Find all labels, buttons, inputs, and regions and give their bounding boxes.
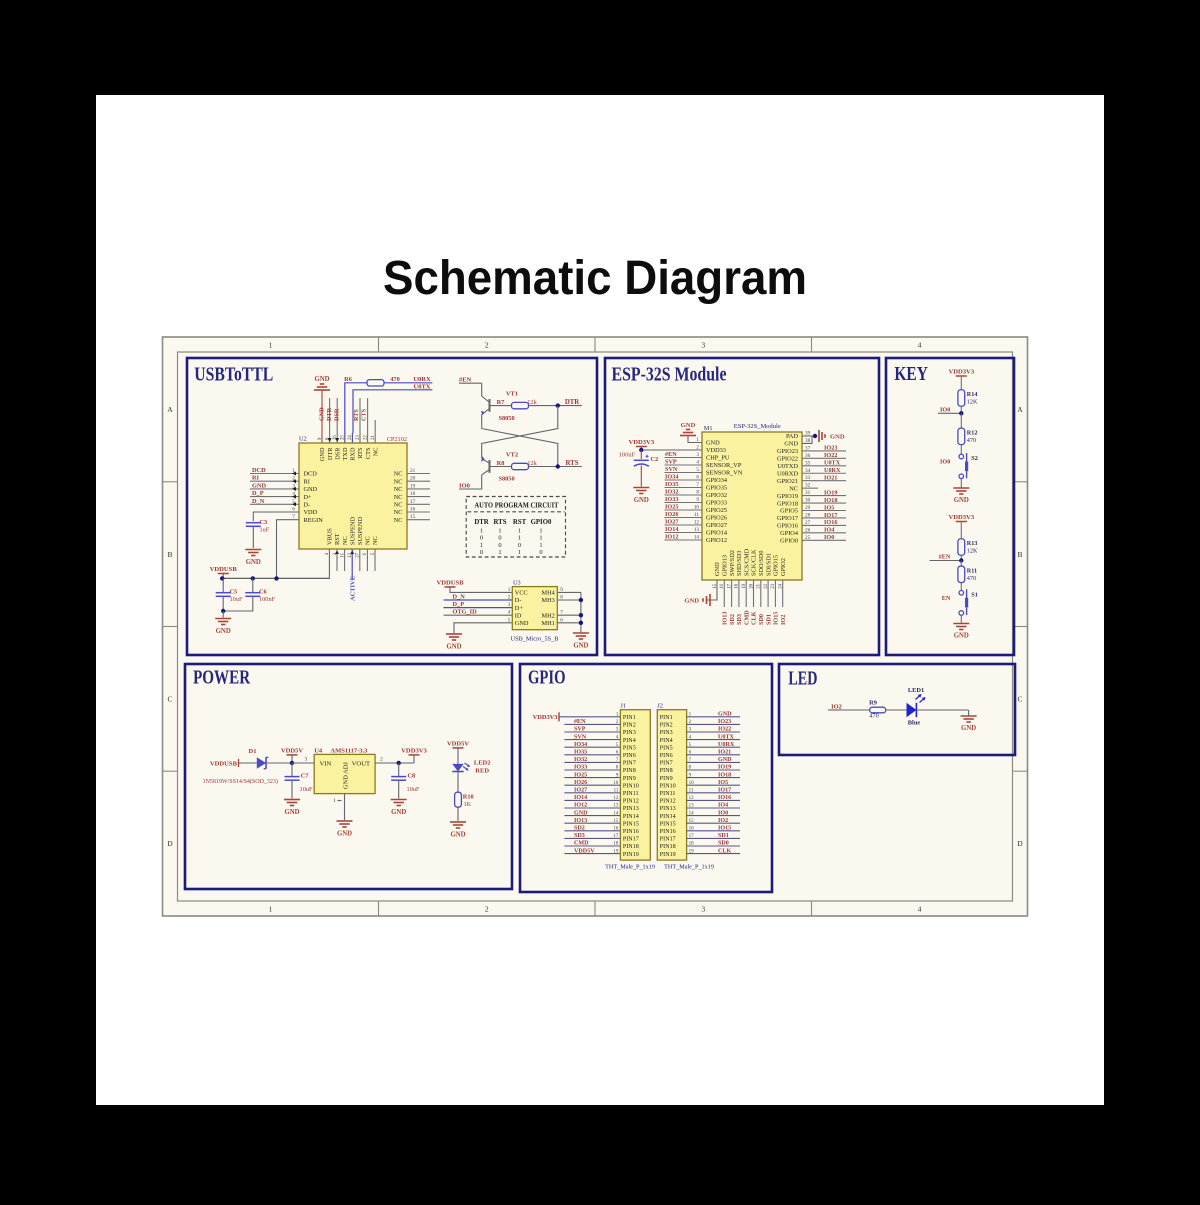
svg-text:SD2: SD2 — [574, 826, 585, 832]
svg-text:PIN14: PIN14 — [623, 814, 639, 820]
svg-text:VDD3V3: VDD3V3 — [948, 369, 974, 376]
svg-text:IO33: IO33 — [665, 496, 678, 503]
svg-text:IO18: IO18 — [824, 497, 837, 504]
svg-text:USB_Micro_5S_B: USB_Micro_5S_B — [511, 636, 559, 643]
svg-text:#EN: #EN — [574, 719, 586, 725]
svg-text:VDD3V3: VDD3V3 — [533, 714, 558, 721]
svg-text:SD0: SD0 — [758, 614, 765, 625]
svg-text:1: 1 — [518, 535, 521, 542]
svg-text:SD0: SD0 — [718, 841, 729, 847]
svg-text:GND: GND — [252, 482, 266, 489]
svg-text:Schematic Diagram: Schematic Diagram — [383, 252, 807, 305]
svg-text:IO16: IO16 — [718, 795, 731, 801]
svg-text:PIN8: PIN8 — [623, 768, 636, 774]
svg-text:S2: S2 — [971, 455, 978, 462]
svg-text:15: 15 — [410, 514, 416, 520]
svg-text:LED: LED — [788, 669, 817, 690]
svg-text:PIN15: PIN15 — [623, 821, 639, 827]
svg-text:23: 23 — [771, 583, 776, 588]
svg-text:GPIO16: GPIO16 — [777, 523, 798, 530]
svg-text:11: 11 — [614, 789, 619, 794]
svg-text:GPIO12: GPIO12 — [706, 537, 727, 544]
svg-text:D_N: D_N — [453, 594, 466, 601]
svg-text:IO34: IO34 — [665, 474, 678, 481]
svg-text:12: 12 — [613, 796, 619, 801]
svg-text:12K: 12K — [967, 399, 978, 406]
svg-text:SD3: SD3 — [574, 833, 585, 839]
svg-text:3: 3 — [508, 602, 511, 608]
svg-text:GND: GND — [246, 559, 261, 566]
svg-text:IO16: IO16 — [824, 519, 837, 526]
svg-text:0: 0 — [518, 542, 521, 549]
svg-text:1: 1 — [518, 549, 521, 556]
svg-text:IO0: IO0 — [718, 810, 728, 816]
svg-text:M1: M1 — [704, 425, 713, 432]
svg-text:13: 13 — [613, 804, 619, 809]
svg-text:GND: GND — [718, 712, 732, 718]
svg-text:S8050: S8050 — [499, 415, 515, 422]
svg-text:1: 1 — [518, 528, 521, 535]
svg-text:GPIO26: GPIO26 — [706, 515, 727, 522]
svg-text:RST: RST — [334, 533, 341, 545]
svg-text:20: 20 — [749, 583, 754, 588]
svg-text:GPIO22: GPIO22 — [777, 456, 798, 463]
svg-text:VT1: VT1 — [506, 391, 518, 398]
svg-text:SD1: SD1 — [718, 833, 729, 839]
svg-text:IO0: IO0 — [824, 534, 834, 541]
svg-text:C6: C6 — [259, 589, 267, 596]
svg-text:PIN11: PIN11 — [623, 791, 639, 797]
svg-text:GPIO21: GPIO21 — [777, 478, 798, 485]
svg-text:IO17: IO17 — [824, 512, 837, 519]
svg-text:18: 18 — [410, 491, 416, 497]
svg-text:D: D — [167, 839, 173, 848]
svg-text:NC: NC — [394, 494, 403, 501]
svg-text:NC: NC — [372, 448, 379, 457]
svg-text:GND: GND — [954, 497, 969, 504]
svg-text:NC: NC — [394, 502, 403, 509]
svg-text:U0RXD: U0RXD — [777, 470, 798, 477]
svg-text:GND: GND — [515, 620, 529, 627]
svg-text:23: 23 — [356, 435, 361, 440]
svg-text:DTR: DTR — [565, 399, 579, 406]
svg-text:GPIO32: GPIO32 — [706, 492, 727, 499]
svg-text:SDO/SD0: SDO/SD0 — [758, 550, 765, 576]
svg-text:2: 2 — [485, 905, 489, 914]
svg-text:17: 17 — [410, 499, 416, 505]
svg-text:1K: 1K — [464, 801, 472, 808]
svg-text:22: 22 — [363, 435, 368, 440]
svg-text:C3: C3 — [260, 519, 268, 526]
svg-text:U0TX: U0TX — [414, 383, 431, 390]
svg-text:25: 25 — [341, 435, 346, 440]
svg-text:VDD5V: VDD5V — [574, 848, 595, 854]
svg-text:GPIO17: GPIO17 — [777, 515, 798, 522]
svg-text:C: C — [1017, 694, 1022, 703]
svg-text:20: 20 — [410, 476, 416, 482]
svg-text:SENSOR_VP: SENSOR_VP — [706, 462, 742, 469]
svg-text:PIN1: PIN1 — [623, 715, 636, 721]
svg-text:GND: GND — [706, 440, 720, 447]
svg-text:IO13: IO13 — [722, 612, 729, 625]
svg-text:0: 0 — [539, 549, 542, 556]
svg-text:D-: D- — [304, 502, 311, 509]
svg-text:#EN: #EN — [665, 451, 677, 458]
svg-text:PAD: PAD — [786, 433, 798, 440]
svg-text:1N5819W/SS14/S4(SOD_323): 1N5819W/SS14/S4(SOD_323) — [203, 778, 278, 785]
svg-text:DTR: DTR — [327, 447, 334, 460]
svg-text:RI: RI — [304, 478, 310, 485]
svg-text:GND: GND — [450, 832, 465, 839]
svg-text:IO19: IO19 — [718, 765, 731, 771]
svg-text:R12: R12 — [967, 429, 978, 436]
svg-text:RTS: RTS — [566, 460, 579, 467]
svg-text:RTS: RTS — [353, 409, 360, 421]
svg-text:16: 16 — [720, 583, 725, 588]
svg-text:21: 21 — [371, 435, 376, 440]
svg-text:GPIO25: GPIO25 — [706, 507, 727, 514]
svg-text:19: 19 — [410, 483, 416, 489]
svg-text:12k: 12k — [527, 399, 537, 406]
svg-text:OTG_ID: OTG_ID — [453, 609, 478, 616]
svg-text:PIN15: PIN15 — [660, 821, 676, 827]
svg-text:IO15: IO15 — [718, 826, 731, 832]
svg-text:0: 0 — [480, 549, 483, 556]
svg-text:D-: D- — [515, 597, 522, 604]
svg-text:GND ADJ: GND ADJ — [343, 762, 350, 789]
svg-text:PIN9: PIN9 — [623, 776, 636, 782]
svg-text:PIN12: PIN12 — [660, 799, 676, 805]
svg-text:21: 21 — [757, 583, 762, 588]
svg-text:CTS: CTS — [360, 408, 367, 421]
svg-text:DSR: DSR — [334, 408, 341, 421]
svg-text:1uF: 1uF — [260, 527, 270, 534]
svg-text:B: B — [1017, 550, 1022, 559]
svg-text:GPIO0: GPIO0 — [531, 519, 552, 526]
svg-text:16: 16 — [613, 827, 619, 832]
svg-text:GND: GND — [337, 831, 352, 838]
svg-text:SCK/CLK: SCK/CLK — [751, 549, 758, 576]
svg-text:C2: C2 — [651, 456, 659, 463]
svg-text:2: 2 — [508, 595, 511, 601]
svg-text:10uF: 10uF — [407, 786, 420, 793]
svg-text:U0RX: U0RX — [718, 742, 735, 748]
svg-text:11: 11 — [340, 552, 345, 557]
svg-text:R13: R13 — [967, 540, 978, 547]
svg-text:GND: GND — [319, 447, 326, 461]
svg-text:VDDUSB: VDDUSB — [436, 580, 464, 587]
svg-text:SHD/SD3: SHD/SD3 — [736, 550, 743, 576]
svg-text:NC: NC — [372, 536, 379, 545]
svg-text:U4: U4 — [314, 748, 323, 755]
svg-text:RED: RED — [475, 768, 489, 775]
svg-text:VDD5V: VDD5V — [281, 747, 304, 754]
svg-text:NC: NC — [342, 536, 349, 545]
svg-text:IO13: IO13 — [574, 818, 587, 824]
svg-text:RTS: RTS — [494, 519, 507, 526]
svg-text:PIN18: PIN18 — [623, 844, 639, 850]
svg-text:1: 1 — [696, 437, 699, 443]
svg-text:IO12: IO12 — [574, 803, 587, 809]
svg-text:C5: C5 — [230, 589, 238, 596]
svg-text:MH3: MH3 — [542, 597, 555, 604]
svg-text:NC: NC — [365, 536, 372, 545]
svg-text:CLK: CLK — [751, 611, 758, 625]
svg-text:TXD: TXD — [342, 447, 349, 460]
svg-text:ACTIVE: ACTIVE — [350, 576, 357, 601]
svg-text:SVN: SVN — [574, 734, 587, 740]
svg-text:GPIO18: GPIO18 — [777, 500, 798, 507]
svg-text:3: 3 — [701, 905, 705, 914]
svg-text:470: 470 — [390, 376, 399, 383]
svg-text:NC: NC — [394, 517, 403, 524]
svg-text:1: 1 — [480, 542, 483, 549]
svg-text:IO23: IO23 — [718, 719, 731, 725]
svg-text:PIN3: PIN3 — [623, 730, 636, 736]
svg-text:RI: RI — [252, 475, 260, 482]
svg-text:1: 1 — [539, 528, 542, 535]
svg-text:PIN1: PIN1 — [660, 715, 673, 721]
svg-text:U2: U2 — [299, 436, 307, 443]
svg-text:27: 27 — [356, 552, 361, 557]
svg-text:2: 2 — [292, 476, 295, 482]
svg-text:IO5: IO5 — [718, 780, 728, 786]
svg-text:100nF: 100nF — [259, 596, 276, 603]
svg-text:D1: D1 — [249, 748, 257, 755]
svg-text:PIN9: PIN9 — [660, 776, 673, 782]
svg-text:R6: R6 — [344, 376, 352, 383]
svg-text:GPIO5: GPIO5 — [780, 508, 798, 515]
svg-text:VDD3V3: VDD3V3 — [948, 514, 974, 521]
svg-text:SWP/SD2: SWP/SD2 — [729, 550, 736, 576]
svg-text:IO23: IO23 — [824, 445, 837, 452]
svg-text:GND: GND — [784, 441, 798, 448]
svg-text:17: 17 — [727, 583, 732, 588]
svg-text:D+: D+ — [515, 605, 524, 612]
svg-text:VOUT: VOUT — [352, 761, 370, 768]
svg-text:1: 1 — [292, 468, 295, 474]
svg-text:NC: NC — [394, 486, 403, 493]
svg-text:GND: GND — [574, 810, 588, 816]
svg-text:19: 19 — [742, 583, 747, 588]
svg-text:1: 1 — [498, 549, 501, 556]
svg-text:PIN7: PIN7 — [623, 761, 636, 767]
svg-text:SD1: SD1 — [765, 614, 772, 625]
svg-text:IO18: IO18 — [718, 772, 731, 778]
svg-text:NC: NC — [394, 478, 403, 485]
svg-text:SUSPEND: SUSPEND — [349, 517, 356, 545]
svg-text:1: 1 — [508, 587, 511, 593]
svg-text:U3: U3 — [513, 580, 521, 587]
svg-text:GPIO15: GPIO15 — [773, 555, 780, 576]
svg-text:PIN14: PIN14 — [660, 814, 676, 820]
svg-text:1: 1 — [539, 542, 542, 549]
svg-text:GPIO35: GPIO35 — [706, 485, 727, 492]
svg-text:2: 2 — [696, 445, 699, 451]
svg-text:IO19: IO19 — [824, 489, 837, 496]
svg-text:DCD: DCD — [304, 471, 318, 478]
svg-text:5: 5 — [508, 617, 511, 623]
svg-text:PIN13: PIN13 — [660, 806, 676, 812]
svg-text:THT_Male_P_1x19: THT_Male_P_1x19 — [664, 863, 714, 870]
svg-text:ID: ID — [515, 612, 522, 619]
svg-text:10uF: 10uF — [230, 596, 243, 603]
svg-text:IO26: IO26 — [665, 511, 678, 518]
svg-text:LED2: LED2 — [474, 760, 491, 767]
svg-text:CP2102: CP2102 — [387, 436, 407, 443]
svg-text:J2: J2 — [657, 703, 663, 710]
svg-text:GPIO0: GPIO0 — [780, 538, 798, 545]
svg-text:1: 1 — [539, 535, 542, 542]
svg-text:IO22: IO22 — [824, 452, 837, 459]
svg-text:1: 1 — [269, 341, 273, 350]
svg-text:GND: GND — [634, 497, 649, 504]
svg-text:IO17: IO17 — [718, 788, 731, 794]
svg-text:SD3: SD3 — [736, 614, 743, 625]
svg-text:CMD: CMD — [574, 841, 589, 847]
svg-text:IO27: IO27 — [574, 788, 587, 794]
svg-text:IO4: IO4 — [718, 803, 728, 809]
svg-text:POWER: POWER — [193, 668, 251, 689]
svg-text:IO32: IO32 — [665, 489, 678, 496]
svg-text:PIN18: PIN18 — [660, 844, 676, 850]
svg-text:GPIO: GPIO — [528, 668, 566, 689]
svg-text:PIN16: PIN16 — [623, 829, 639, 835]
svg-text:CHP_PU: CHP_PU — [706, 455, 730, 462]
svg-text:PIN3: PIN3 — [660, 730, 673, 736]
svg-text:S8050: S8050 — [499, 476, 515, 483]
svg-text:18: 18 — [735, 583, 740, 588]
svg-text:REGIN: REGIN — [304, 517, 324, 524]
svg-text:VDD5V: VDD5V — [447, 740, 470, 747]
svg-text:2: 2 — [485, 341, 489, 350]
svg-text:GND: GND — [684, 597, 699, 604]
svg-text:VT2: VT2 — [506, 452, 518, 459]
svg-text:SD2: SD2 — [729, 614, 736, 625]
svg-text:CLK: CLK — [718, 848, 731, 854]
svg-text:D+: D+ — [304, 494, 313, 501]
svg-text:IO15: IO15 — [773, 612, 780, 625]
svg-text:3: 3 — [292, 483, 295, 489]
svg-text:IO2: IO2 — [780, 615, 787, 625]
svg-text:U0TX: U0TX — [718, 734, 735, 740]
svg-text:U0TX: U0TX — [824, 460, 841, 467]
svg-text:RST: RST — [513, 519, 527, 526]
svg-text:GND: GND — [446, 644, 461, 651]
svg-text:IO27: IO27 — [665, 519, 678, 526]
svg-text:CMD: CMD — [743, 610, 750, 625]
svg-text:IO25: IO25 — [574, 772, 587, 778]
svg-text:VIN: VIN — [320, 761, 332, 768]
svg-text:C8: C8 — [408, 773, 416, 780]
svg-text:ESP-32S Module: ESP-32S Module — [612, 365, 727, 386]
svg-text:0: 0 — [498, 542, 501, 549]
svg-text:DCD: DCD — [252, 467, 266, 474]
svg-text:GND: GND — [314, 376, 329, 383]
svg-text:CTS: CTS — [365, 447, 372, 459]
svg-text:MH2: MH2 — [542, 612, 555, 619]
svg-text:GND: GND — [830, 433, 845, 440]
svg-text:RTS: RTS — [357, 447, 364, 459]
svg-text:GND: GND — [714, 562, 721, 576]
svg-text:IO14: IO14 — [574, 795, 587, 801]
svg-text:VDD33: VDD33 — [706, 447, 726, 454]
svg-text:MH1: MH1 — [542, 620, 555, 627]
svg-text:GND: GND — [319, 407, 326, 421]
svg-text:10: 10 — [613, 781, 619, 786]
svg-text:R14: R14 — [967, 391, 978, 398]
svg-text:GND: GND — [284, 809, 299, 816]
svg-text:IO14: IO14 — [665, 526, 678, 533]
svg-text:VDD3V3: VDD3V3 — [628, 439, 654, 446]
svg-text:RXD: RXD — [350, 447, 357, 461]
svg-text:A: A — [1017, 405, 1023, 414]
svg-text:IO32: IO32 — [574, 757, 587, 763]
svg-text:B: B — [167, 550, 172, 559]
svg-text:R9: R9 — [869, 700, 877, 707]
svg-text:U0TXD: U0TXD — [777, 463, 798, 470]
svg-text:D: D — [1017, 839, 1023, 848]
svg-text:1: 1 — [333, 798, 336, 804]
svg-text:19: 19 — [613, 849, 619, 854]
svg-text:21: 21 — [410, 468, 416, 474]
svg-text:DTR: DTR — [474, 519, 488, 526]
svg-text:PIN19: PIN19 — [623, 852, 639, 858]
svg-text:GND: GND — [216, 628, 231, 635]
svg-text:VDDUSB: VDDUSB — [210, 566, 238, 573]
svg-text:PIN2: PIN2 — [623, 723, 636, 729]
svg-text:4: 4 — [918, 905, 922, 914]
svg-text:GPIO27: GPIO27 — [706, 522, 727, 529]
svg-text:18: 18 — [613, 842, 619, 847]
svg-text:470: 470 — [967, 575, 976, 582]
svg-text:12K: 12K — [967, 548, 978, 555]
svg-text:PIN12: PIN12 — [623, 799, 639, 805]
svg-text:PIN4: PIN4 — [623, 738, 636, 744]
svg-text:AUTO PROGRAM CIRCUIT: AUTO PROGRAM CIRCUIT — [475, 501, 559, 510]
svg-text:IO26: IO26 — [574, 780, 587, 786]
svg-text:38: 38 — [805, 438, 811, 444]
svg-text:PIN5: PIN5 — [660, 745, 673, 751]
svg-text:S1: S1 — [971, 591, 978, 598]
svg-text:NC: NC — [789, 485, 798, 492]
svg-text:PIN13: PIN13 — [623, 806, 639, 812]
svg-text:100uF: 100uF — [619, 452, 636, 459]
svg-text:#EN: #EN — [939, 554, 951, 561]
svg-text:MH4: MH4 — [542, 590, 556, 597]
svg-text:IO4: IO4 — [824, 527, 834, 534]
svg-text:4: 4 — [292, 491, 295, 497]
svg-text:0: 0 — [498, 535, 501, 542]
svg-text:5: 5 — [292, 499, 295, 505]
svg-text:IO34: IO34 — [574, 742, 587, 748]
svg-text:0: 0 — [480, 535, 483, 542]
svg-text:IO21: IO21 — [718, 750, 731, 756]
svg-text:1: 1 — [269, 905, 273, 914]
svg-text:DSR: DSR — [334, 447, 341, 460]
svg-text:4: 4 — [918, 341, 922, 350]
svg-text:D_N: D_N — [252, 498, 265, 505]
svg-text:470: 470 — [869, 713, 878, 720]
svg-text:PIN10: PIN10 — [623, 783, 639, 789]
svg-text:D_P: D_P — [252, 490, 264, 497]
svg-text:24: 24 — [348, 435, 353, 440]
svg-text:SVN: SVN — [665, 466, 678, 473]
svg-text:GND: GND — [304, 486, 318, 493]
svg-text:C: C — [167, 694, 172, 703]
svg-text:2: 2 — [380, 756, 383, 762]
svg-text:PIN7: PIN7 — [660, 761, 673, 767]
